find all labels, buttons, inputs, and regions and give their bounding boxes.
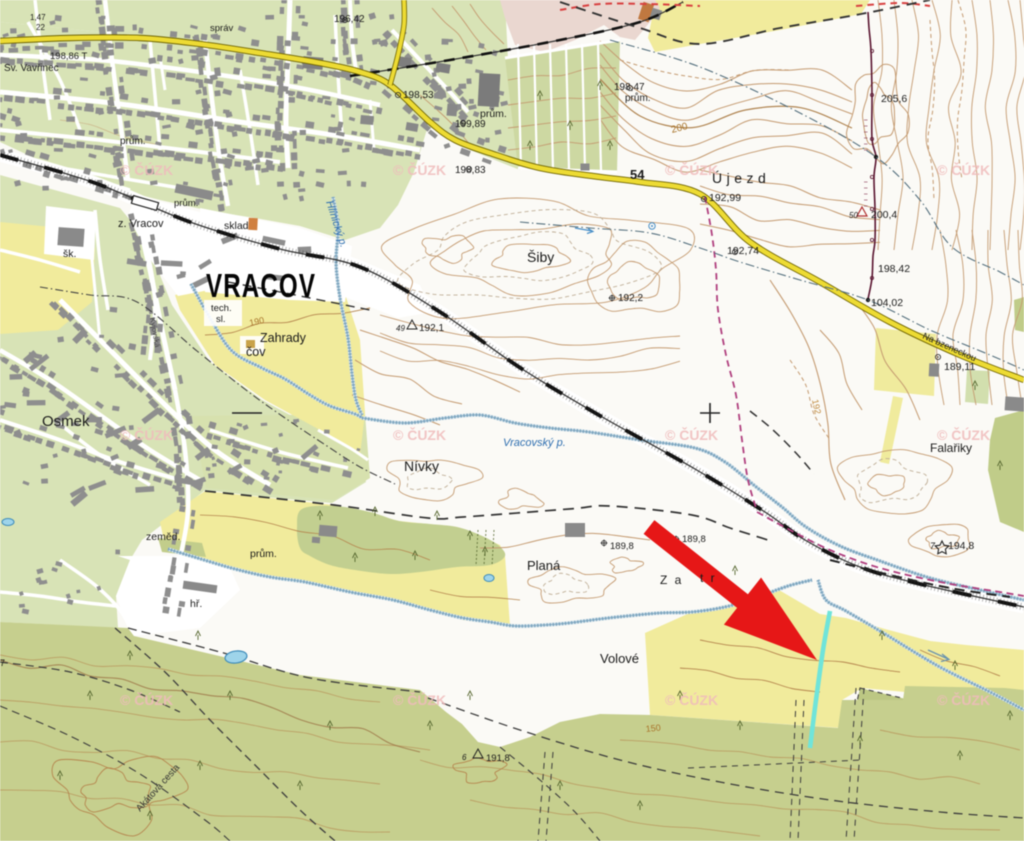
svg-text:čov: čov: [246, 345, 266, 359]
svg-text:150: 150: [645, 722, 661, 734]
svg-text:191,8: 191,8: [486, 753, 510, 764]
svg-text:198,53: 198,53: [403, 90, 434, 101]
svg-text:Volové: Volové: [600, 651, 639, 666]
svg-text:Vracovský p.: Vracovský p.: [503, 437, 566, 449]
svg-text:prům.: prům.: [250, 548, 277, 560]
svg-text:54: 54: [630, 167, 645, 182]
svg-text:zeměd.: zeměd.: [146, 531, 180, 543]
svg-text:© ČÚZK: © ČÚZK: [393, 426, 446, 443]
svg-text:196,42: 196,42: [334, 14, 365, 25]
svg-text:© ČÚZK: © ČÚZK: [393, 161, 446, 178]
svg-text:192,1: 192,1: [419, 323, 444, 334]
svg-text:© ČÚZK: © ČÚZK: [937, 161, 990, 178]
svg-text:6: 6: [462, 753, 467, 762]
svg-text:© ČÚZK: © ČÚZK: [665, 691, 718, 708]
svg-text:Planá: Planá: [527, 558, 561, 573]
svg-text:Sv. Vavřinec: Sv. Vavřinec: [4, 63, 59, 74]
svg-text:sl.: sl.: [216, 314, 226, 325]
svg-text:49: 49: [396, 324, 405, 333]
svg-text:z. Vracov: z. Vracov: [118, 218, 164, 230]
svg-text:prům.: prům.: [625, 92, 651, 104]
svg-text:192,2: 192,2: [618, 293, 643, 304]
svg-text:189,8: 189,8: [610, 541, 634, 552]
svg-text:© ČÚZK: © ČÚZK: [120, 426, 173, 443]
svg-text:VRACOV: VRACOV: [206, 268, 316, 305]
svg-text:22: 22: [36, 23, 45, 32]
svg-text:© ČÚZK: © ČÚZK: [937, 691, 990, 708]
svg-text:prům.: prům.: [174, 198, 198, 209]
svg-text:198,47: 198,47: [614, 82, 645, 93]
svg-text:192,74: 192,74: [727, 245, 759, 257]
svg-text:200,4: 200,4: [871, 209, 897, 221]
svg-text:sklad: sklad: [224, 220, 249, 232]
svg-text:© ČÚZK: © ČÚZK: [665, 426, 718, 443]
svg-text:198,42: 198,42: [878, 263, 910, 275]
svg-text:Z a: Z a: [660, 573, 683, 587]
svg-text:104,02: 104,02: [871, 297, 903, 309]
svg-text:199,89: 199,89: [455, 119, 486, 130]
svg-text:tech.: tech.: [211, 303, 232, 314]
svg-text:Nívky: Nívky: [404, 458, 439, 474]
svg-text:7: 7: [0, 658, 5, 668]
svg-text:1,47: 1,47: [30, 13, 46, 22]
svg-text:© ČÚZK: © ČÚZK: [665, 161, 718, 178]
svg-text:© ČÚZK: © ČÚZK: [120, 691, 173, 708]
svg-text:správ: správ: [210, 23, 233, 34]
svg-text:hř.: hř.: [190, 598, 202, 610]
svg-text:205,6: 205,6: [881, 93, 907, 105]
svg-text:194,8: 194,8: [948, 540, 974, 552]
svg-text:t r: t r: [700, 571, 717, 585]
svg-text:192,99: 192,99: [709, 192, 741, 204]
svg-text:189,8: 189,8: [682, 534, 706, 545]
svg-text:50: 50: [849, 211, 858, 220]
svg-text:198,86 T: 198,86 T: [50, 51, 88, 62]
svg-text:prům.: prům.: [120, 135, 146, 147]
svg-text:šk.: šk.: [63, 248, 76, 260]
svg-text:© ČÚZK: © ČÚZK: [120, 161, 173, 178]
svg-text:198,83: 198,83: [455, 165, 486, 176]
svg-text:189,11: 189,11: [944, 361, 975, 373]
svg-text:Zahrady: Zahrady: [260, 331, 307, 345]
svg-text:Šiby: Šiby: [527, 249, 554, 265]
svg-text:Osmek: Osmek: [42, 413, 90, 430]
svg-text:© ČÚZK: © ČÚZK: [393, 691, 446, 708]
svg-text:Újezd: Újezd: [712, 170, 770, 186]
svg-text:Falařiky: Falařiky: [930, 441, 972, 455]
